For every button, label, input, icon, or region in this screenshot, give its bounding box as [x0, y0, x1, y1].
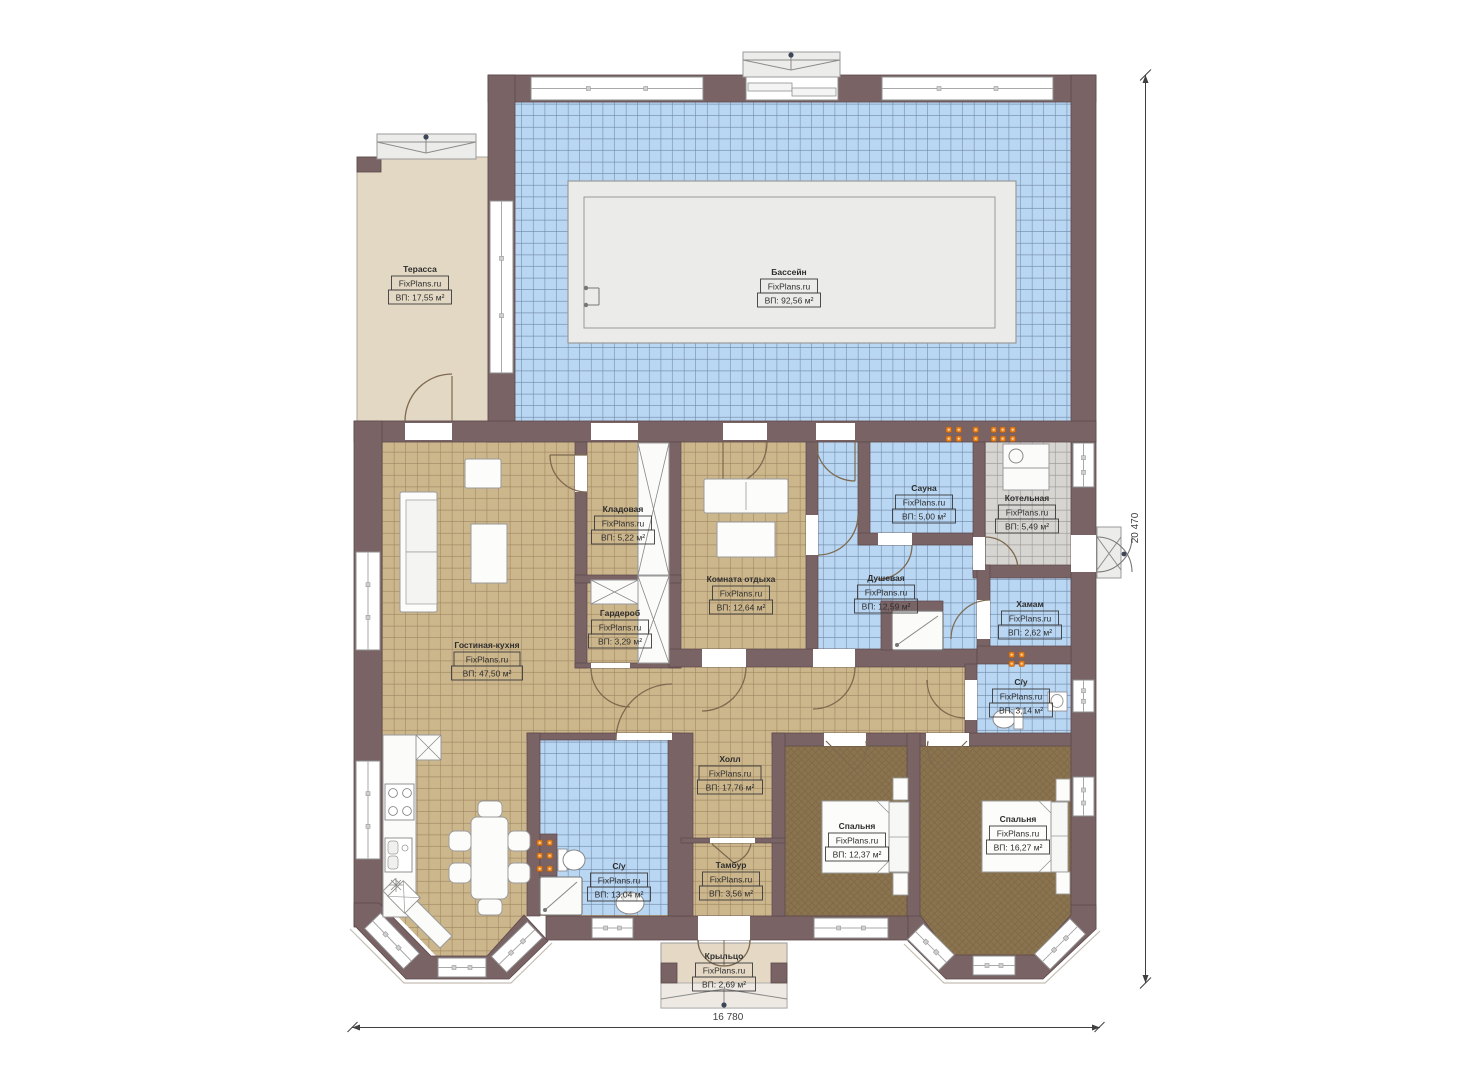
svg-text:ВП: 5,49 м²: ВП: 5,49 м² — [1005, 522, 1049, 532]
svg-text:Котельная: Котельная — [1005, 493, 1050, 503]
svg-text:Душевая: Душевая — [867, 573, 905, 583]
svg-text:FixPlans.ru: FixPlans.ru — [768, 282, 811, 292]
svg-text:ВП: 5,00 м²: ВП: 5,00 м² — [902, 512, 946, 522]
svg-text:Спальня: Спальня — [1000, 814, 1037, 824]
svg-text:Сауна: Сауна — [911, 483, 937, 493]
svg-text:ВП: 92,56 м²: ВП: 92,56 м² — [765, 296, 814, 306]
svg-text:FixPlans.ru: FixPlans.ru — [720, 589, 763, 599]
svg-text:Крыльцо: Крыльцо — [705, 951, 744, 961]
svg-text:ВП: 17,76 м²: ВП: 17,76 м² — [706, 783, 755, 793]
svg-text:FixPlans.ru: FixPlans.ru — [399, 279, 442, 289]
svg-text:С/у: С/у — [612, 861, 626, 871]
svg-text:20 470: 20 470 — [1130, 512, 1141, 543]
svg-text:ВП: 3,56 м²: ВП: 3,56 м² — [709, 889, 753, 899]
svg-text:FixPlans.ru: FixPlans.ru — [865, 588, 908, 598]
svg-text:Бассейн: Бассейн — [771, 267, 806, 277]
svg-text:FixPlans.ru: FixPlans.ru — [1009, 614, 1052, 624]
svg-text:16 780: 16 780 — [713, 1012, 744, 1023]
svg-text:ВП: 17,55 м²: ВП: 17,55 м² — [396, 293, 445, 303]
svg-text:ВП: 12,59 м²: ВП: 12,59 м² — [862, 602, 911, 612]
svg-text:ВП: 12,64 м²: ВП: 12,64 м² — [717, 603, 766, 613]
svg-text:Хамам: Хамам — [1016, 599, 1044, 609]
svg-text:Тамбур: Тамбур — [716, 860, 747, 870]
svg-text:ВП: 5,22 м²: ВП: 5,22 м² — [601, 533, 645, 543]
svg-text:ВП: 16,27 м²: ВП: 16,27 м² — [994, 843, 1043, 853]
svg-text:FixPlans.ru: FixPlans.ru — [709, 769, 752, 779]
svg-text:FixPlans.ru: FixPlans.ru — [1000, 692, 1043, 702]
svg-text:FixPlans.ru: FixPlans.ru — [703, 966, 746, 976]
svg-text:Комната отдыха: Комната отдыха — [707, 574, 776, 584]
svg-text:ВП: 2,69 м²: ВП: 2,69 м² — [702, 980, 746, 990]
svg-text:Гостиная-кухня: Гостиная-кухня — [454, 640, 519, 650]
svg-text:Гардероб: Гардероб — [600, 608, 640, 618]
svg-text:ВП: 3,14 м²: ВП: 3,14 м² — [999, 706, 1043, 716]
svg-text:Терасса: Терасса — [403, 264, 437, 274]
svg-text:FixPlans.ru: FixPlans.ru — [602, 519, 645, 529]
svg-text:ВП: 12,37 м²: ВП: 12,37 м² — [833, 850, 882, 860]
svg-text:FixPlans.ru: FixPlans.ru — [466, 655, 509, 665]
svg-text:ВП: 2,62 м²: ВП: 2,62 м² — [1008, 628, 1052, 638]
svg-text:FixPlans.ru: FixPlans.ru — [1006, 508, 1049, 518]
svg-text:FixPlans.ru: FixPlans.ru — [903, 498, 946, 508]
svg-text:Спальня: Спальня — [839, 821, 876, 831]
svg-text:ВП: 3,29 м²: ВП: 3,29 м² — [598, 637, 642, 647]
svg-text:FixPlans.ru: FixPlans.ru — [836, 836, 879, 846]
svg-text:ВП: 47,50 м²: ВП: 47,50 м² — [463, 669, 512, 679]
svg-text:FixPlans.ru: FixPlans.ru — [997, 829, 1040, 839]
svg-text:ВП: 13,04 м²: ВП: 13,04 м² — [595, 890, 644, 900]
svg-text:FixPlans.ru: FixPlans.ru — [710, 875, 753, 885]
svg-text:Холл: Холл — [719, 754, 740, 764]
svg-text:С/у: С/у — [1014, 677, 1028, 687]
svg-text:FixPlans.ru: FixPlans.ru — [598, 876, 641, 886]
svg-text:FixPlans.ru: FixPlans.ru — [599, 623, 642, 633]
svg-text:Кладовая: Кладовая — [603, 504, 644, 514]
